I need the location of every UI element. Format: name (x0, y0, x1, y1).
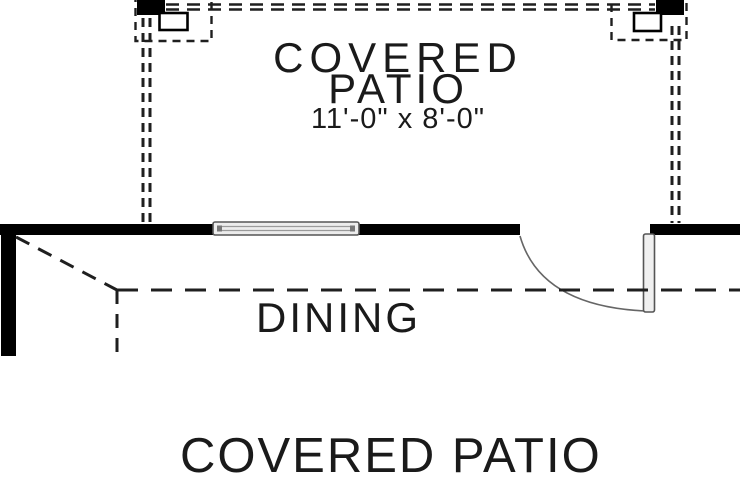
left-post-column-dashed-line (143, 18, 150, 223)
window-jamb-right (350, 226, 355, 232)
patio-dimensions: 11'-0" x 8'-0" (198, 106, 598, 132)
floor-plan: COVERED PATIO 11'-0" x 8'-0" DINING COVE… (0, 0, 740, 480)
boundary-diagonal-dashed (16, 237, 117, 290)
window-frame (213, 222, 359, 235)
wall-segment-middle (359, 224, 520, 235)
wall-segment-vertical-left (1, 224, 16, 356)
right-post-column-dashed-line (672, 26, 679, 223)
plan-title: COVERED PATIO (177, 428, 605, 480)
dining-room-label: DINING (256, 294, 421, 342)
left-post-base-plate (160, 13, 188, 30)
right-roof-post (612, 0, 687, 40)
window-jamb-left (217, 226, 222, 232)
right-post-base-plate (634, 13, 661, 31)
window (213, 222, 359, 235)
wall-segment-right (650, 224, 740, 235)
wall-segment-left (0, 224, 213, 235)
door-swing (520, 234, 655, 312)
roof-overhang-dashed-line (166, 5, 655, 10)
door-swing-arc (520, 236, 645, 311)
door-leaf (644, 234, 655, 312)
patio-label-line2: PATIO (198, 73, 598, 104)
patio-room-label: COVERED PATIO 11'-0" x 8'-0" (198, 42, 598, 132)
left-roof-post (136, 0, 212, 41)
